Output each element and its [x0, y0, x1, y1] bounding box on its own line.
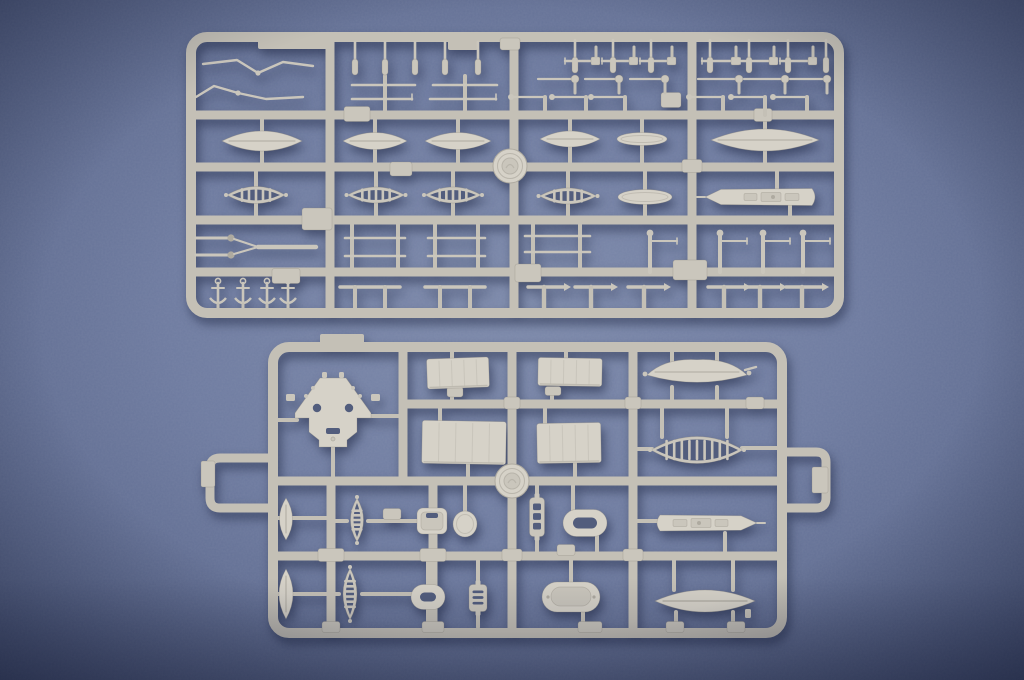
sprue-photo [0, 0, 1024, 680]
bottom-shade [0, 0, 1024, 680]
photo-canvas [0, 0, 1024, 680]
